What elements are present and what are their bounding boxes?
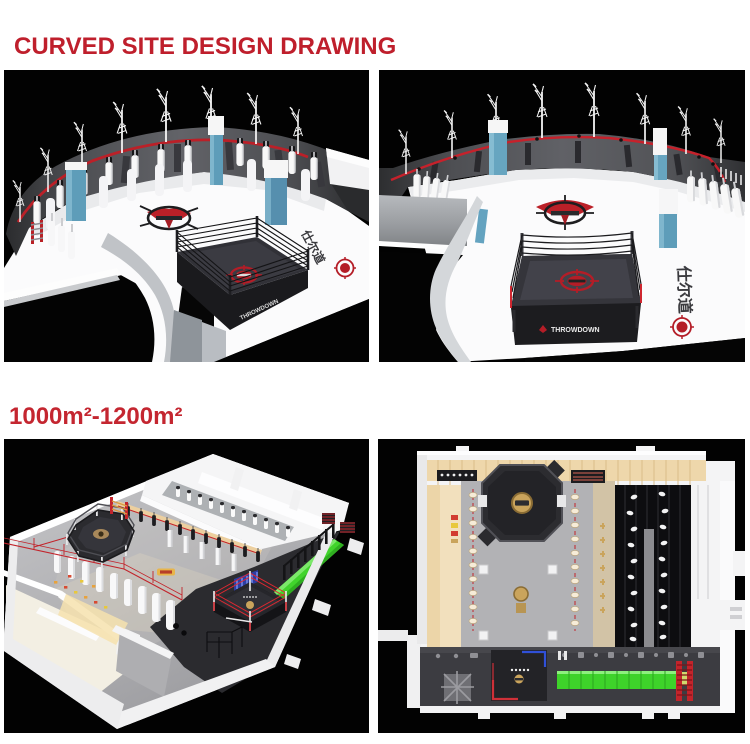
- svg-text:仕尔道: 仕尔道: [674, 264, 695, 314]
- svg-text:THROWDOWN: THROWDOWN: [551, 327, 600, 334]
